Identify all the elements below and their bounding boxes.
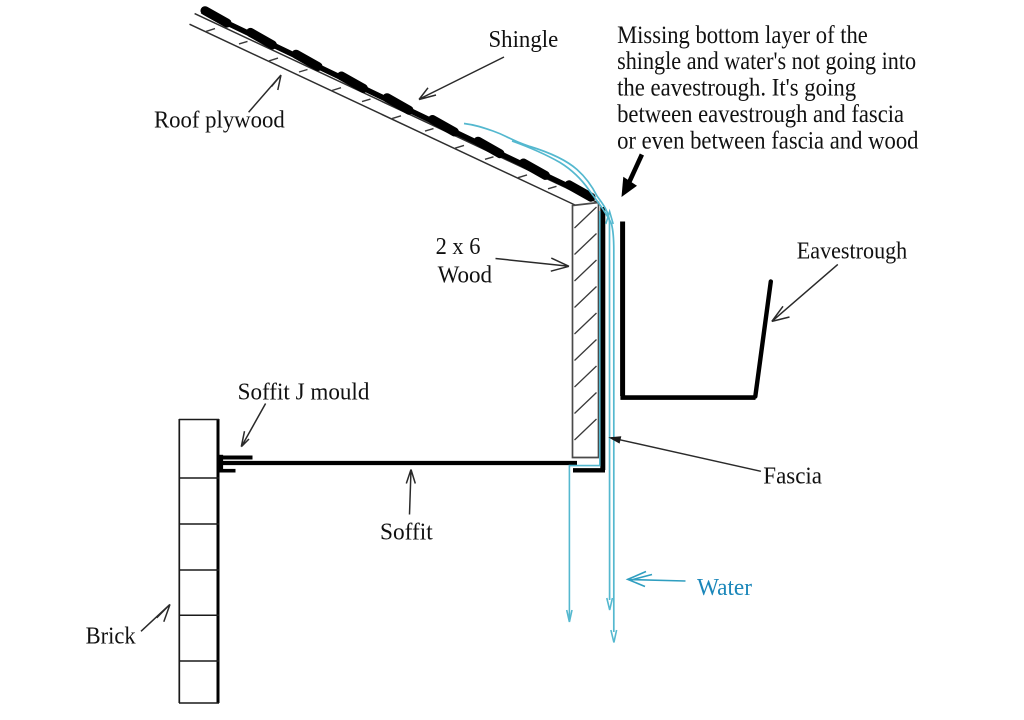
svg-text:Roof plywood: Roof plywood xyxy=(154,107,285,134)
svg-text:Eavestrough: Eavestrough xyxy=(797,238,907,265)
svg-text:Missing bottom layer of the: Missing bottom layer of the xyxy=(617,22,868,49)
svg-text:Water: Water xyxy=(697,574,752,601)
svg-text:2 x 6: 2 x 6 xyxy=(436,233,481,260)
svg-text:Fascia: Fascia xyxy=(763,463,822,490)
svg-text:Soffit J mould: Soffit J mould xyxy=(238,379,370,406)
svg-text:shingle and water's not going: shingle and water's not going into xyxy=(617,48,916,75)
svg-text:Soffit: Soffit xyxy=(380,518,433,545)
svg-text:the eavestrough. It's going: the eavestrough. It's going xyxy=(617,74,856,101)
svg-text:Wood: Wood xyxy=(438,262,492,289)
svg-text:Brick: Brick xyxy=(86,622,137,649)
svg-text:or even between fascia and woo: or even between fascia and wood xyxy=(617,128,919,155)
svg-text:Shingle: Shingle xyxy=(489,26,559,53)
svg-text:between eavestrough and fascia: between eavestrough and fascia xyxy=(617,101,904,128)
